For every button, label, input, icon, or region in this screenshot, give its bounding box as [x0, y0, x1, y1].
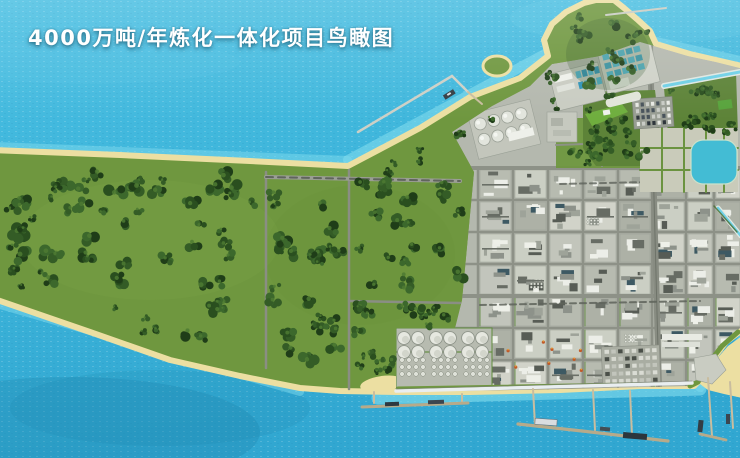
tank-farm	[396, 328, 492, 388]
haze	[0, 0, 740, 120]
project-title: 4000万吨/年炼化一体化项目鸟瞰图	[28, 22, 394, 52]
truck-yard	[601, 345, 660, 387]
aerial-rendering: 4000万吨/年炼化一体化项目鸟瞰图	[0, 0, 740, 458]
aerial-scene	[0, 0, 740, 458]
